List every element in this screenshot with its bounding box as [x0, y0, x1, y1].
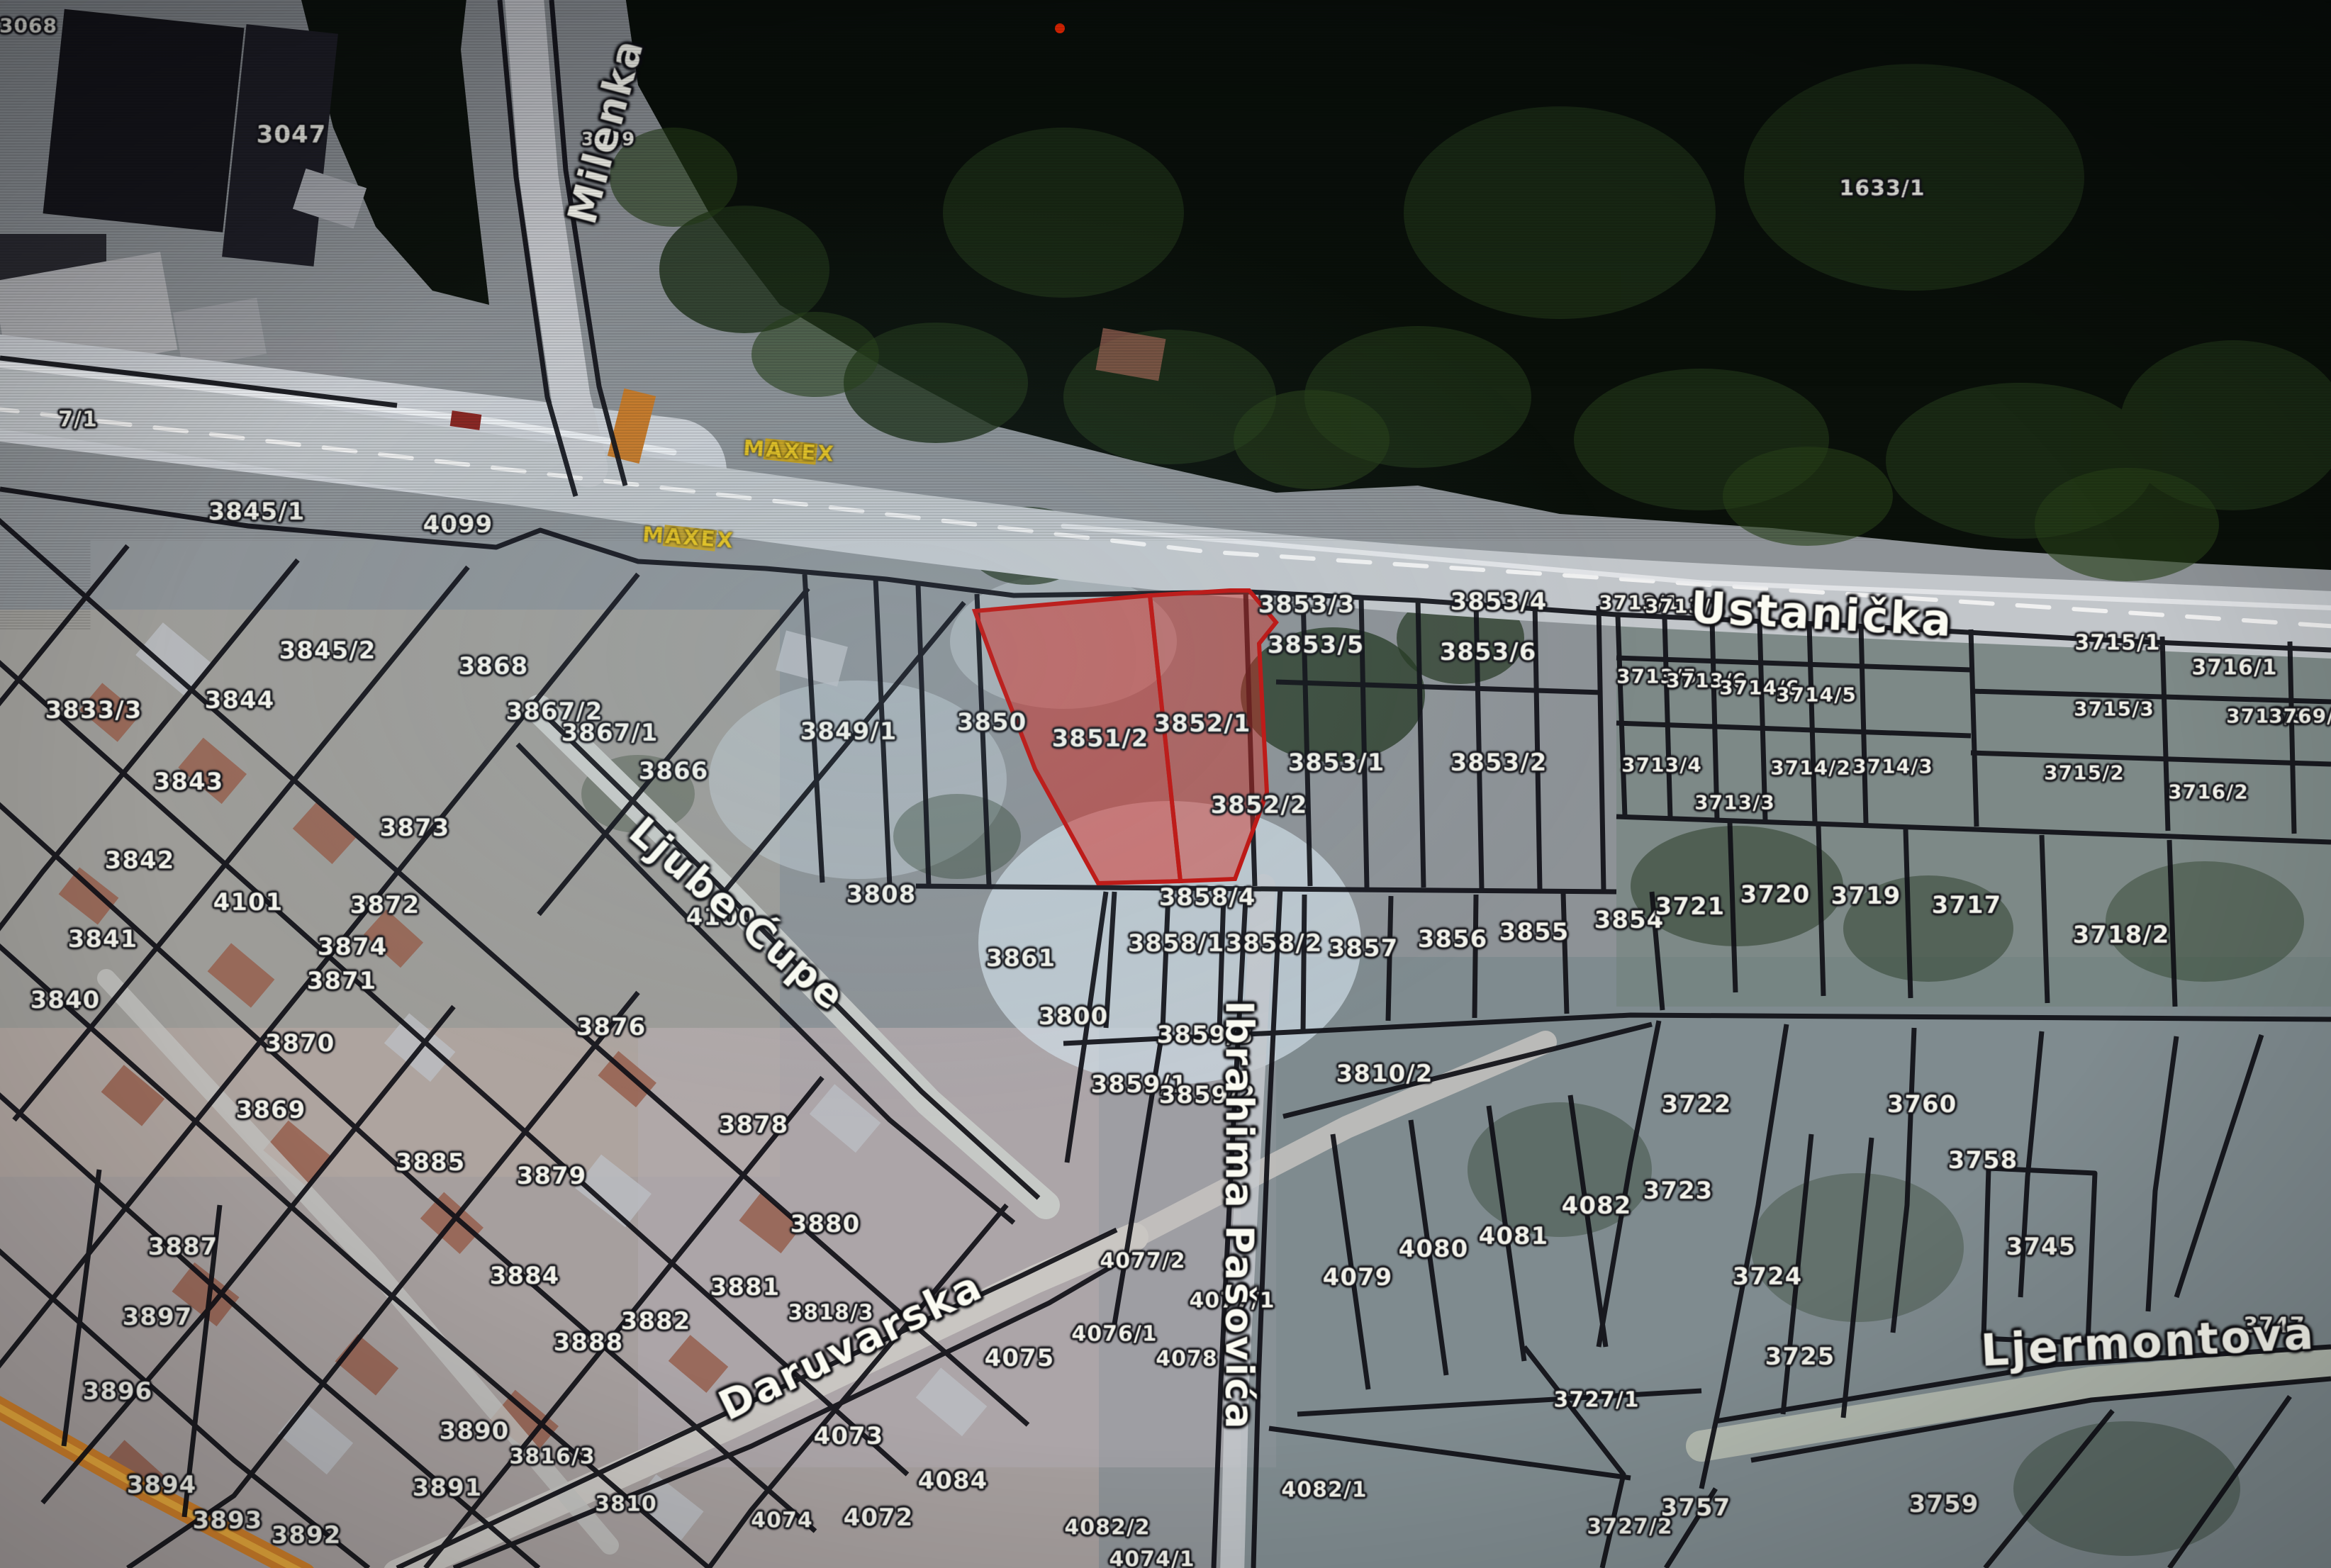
parcel-label-4084: 4084: [918, 1467, 988, 1495]
parcel-label-3719: 3719: [1831, 882, 1901, 910]
parcel-label-4079: 4079: [1323, 1263, 1393, 1292]
parcel-label-3716/2: 3716/2: [2168, 780, 2249, 804]
parcel-label-3715/2: 3715/2: [2044, 761, 2125, 785]
parcel-label-4101: 4101: [213, 888, 284, 917]
parcel-label-4082/2: 4082/2: [1064, 1516, 1150, 1540]
parcel-label-4075: 4075: [985, 1344, 1055, 1372]
parcel-label-4082: 4082: [1562, 1192, 1632, 1220]
parcel-label-3854: 3854: [1594, 906, 1665, 934]
parcel-label-4077/2: 4077/2: [1100, 1249, 1185, 1274]
parcel-label-3872: 3872: [350, 891, 420, 919]
parcel-label-4074/1: 4074/1: [1109, 1547, 1195, 1568]
parcel-label-3713/3: 3713/3: [1694, 791, 1775, 814]
parcel-label-3871: 3871: [307, 967, 377, 995]
parcel-label-3810: 3810: [595, 1492, 657, 1517]
parcel-label-3853/4: 3853/4: [1450, 588, 1548, 616]
parcel-label-4081: 4081: [1479, 1222, 1549, 1250]
parcel-label-3893: 3893: [193, 1506, 263, 1535]
parcel-label-3714/3: 3714/3: [1852, 755, 1933, 778]
parcel-label-3857: 3857: [1329, 934, 1399, 963]
parcel-label-3853/6: 3853/6: [1440, 638, 1537, 666]
parcel-label-3874: 3874: [318, 933, 388, 961]
parcel-label-3759: 3759: [1909, 1490, 1979, 1518]
parcel-label-3879: 3879: [517, 1162, 587, 1190]
parcel-label-3858/1: 3858/1: [1128, 929, 1225, 958]
parcel-label-3855: 3855: [1499, 918, 1570, 946]
parcel-label-3880: 3880: [790, 1210, 861, 1238]
parcel-label-3868: 3868: [459, 652, 529, 681]
parcel-label-3715/3: 3715/3: [2074, 698, 2154, 721]
parcel-label-4072: 4072: [844, 1503, 914, 1532]
parcel-label-3887: 3887: [148, 1233, 218, 1261]
parcel-label-3720: 3720: [1740, 880, 1811, 909]
parcel-label-3881: 3881: [710, 1273, 781, 1301]
parcel-label-3892: 3892: [272, 1521, 342, 1550]
parcel-label-3758: 3758: [1948, 1146, 2018, 1175]
parcel-label-3888: 3888: [554, 1328, 624, 1357]
parcel-label-3833/3: 3833/3: [45, 696, 142, 724]
parcel-label-3867/1: 3867/1: [561, 719, 659, 747]
parcel-label-3723: 3723: [1643, 1177, 1714, 1205]
parcel-label-3861: 3861: [986, 944, 1056, 973]
parcel-label-3718/2: 3718/2: [2073, 921, 2170, 949]
parcel-label-3858/4: 3858/4: [1159, 883, 1256, 912]
parcel-label-3891: 3891: [413, 1474, 483, 1502]
parcel-label-3882: 3882: [621, 1307, 691, 1335]
parcel-label-3724: 3724: [1733, 1262, 1803, 1291]
parcel-label-3876: 3876: [576, 1013, 647, 1041]
parcel-label-1633/1: 1633/1: [1839, 177, 1925, 201]
parcel-label-3714/2: 3714/2: [1770, 756, 1851, 780]
parcel-label-4080: 4080: [1399, 1235, 1469, 1263]
parcel-label-3845/1: 3845/1: [208, 498, 306, 526]
parcel-label-3714/5: 3714/5: [1776, 683, 1857, 707]
parcel-label-3713/4: 3713/4: [1621, 754, 1702, 777]
parcel-label-3870: 3870: [265, 1029, 335, 1058]
parcel-label-3884: 3884: [490, 1262, 560, 1290]
parcel-label-3816/3: 3816/3: [509, 1445, 595, 1469]
parcel-label-3068: 3068: [0, 14, 57, 38]
parcel-label-3721: 3721: [1655, 892, 1726, 921]
parcel-label-3841: 3841: [68, 925, 138, 953]
parcel-label-3727/2: 3727/2: [1587, 1515, 1672, 1540]
parcel-label-3849/1: 3849/1: [800, 717, 898, 746]
parcel-label-3878: 3878: [719, 1111, 789, 1139]
parcel-label-4078: 4078: [1156, 1347, 1218, 1372]
parcel-label-4076/1: 4076/1: [1071, 1322, 1157, 1347]
parcel-label-3715/1: 3715/1: [2074, 631, 2160, 656]
parcel-label-3844: 3844: [205, 686, 275, 715]
parcel-label-3745: 3745: [2006, 1233, 2076, 1261]
parcel-label-3897: 3897: [123, 1303, 193, 1331]
parcel-label-3842: 3842: [105, 846, 175, 875]
parcel-label-3853/5: 3853/5: [1268, 631, 1365, 659]
parcel-label-3853/3: 3853/3: [1258, 590, 1355, 619]
parcel-label-3800: 3800: [1039, 1002, 1109, 1031]
parcel-label-3843: 3843: [154, 768, 224, 796]
parcel-label-4073: 4073: [814, 1422, 884, 1450]
parcel-label-3852/2: 3852/2: [1211, 791, 1308, 819]
parcel-label-3851/2: 3851/2: [1052, 724, 1149, 753]
parcel-label-3725: 3725: [1765, 1343, 1835, 1371]
parcel-label-3885: 3885: [396, 1148, 466, 1177]
parcel-label-3852/1: 3852/1: [1154, 710, 1251, 738]
parcel-label-3894: 3894: [127, 1471, 197, 1499]
parcel-label-3853/2: 3853/2: [1450, 749, 1548, 777]
parcel-label-3856: 3856: [1418, 925, 1488, 953]
parcel-label-3840: 3840: [30, 986, 101, 1014]
parcel-label-3810/2: 3810/2: [1336, 1060, 1433, 1088]
parcel-label-3716/1: 3716/1: [2191, 656, 2277, 681]
parcel-label-3047: 3047: [257, 121, 327, 149]
parcel-label-3717: 3717: [1932, 891, 2002, 919]
parcel-label-3869: 3869: [236, 1096, 306, 1124]
parcel-label-7/1: 7/1: [58, 408, 98, 432]
parcel-label-4074: 4074: [751, 1508, 813, 1533]
parcel-label-3873: 3873: [380, 814, 450, 842]
parcel-label-3890: 3890: [440, 1417, 510, 1445]
parcel-label-3757: 3757: [1661, 1494, 1731, 1522]
parcel-label-3896: 3896: [83, 1377, 153, 1406]
parcel-label-3760: 3760: [1887, 1090, 1957, 1119]
parcel-label-3853/1: 3853/1: [1288, 749, 1385, 777]
parcel-label-3727/1: 3727/1: [1553, 1388, 1639, 1413]
map-viewport[interactable]: 3068304738991633/17/13845/140993845/2383…: [0, 0, 2331, 1568]
parcel-label-3850: 3850: [957, 708, 1027, 737]
street-label-ibrahima-pašovića: Ibrahima Pašovića: [1217, 1000, 1262, 1430]
parcel-label-3722: 3722: [1662, 1090, 1732, 1119]
parcel-label-3808: 3808: [846, 880, 917, 909]
parcel-label-3769/3: 3769/3: [2269, 705, 2331, 728]
parcel-label-3866: 3866: [639, 757, 709, 785]
parcel-label-4082/1: 4082/1: [1281, 1478, 1367, 1503]
parcel-label-3858/2: 3858/2: [1226, 929, 1323, 958]
parcel-label-4099: 4099: [423, 510, 493, 539]
parcel-label-3845/2: 3845/2: [279, 637, 376, 665]
